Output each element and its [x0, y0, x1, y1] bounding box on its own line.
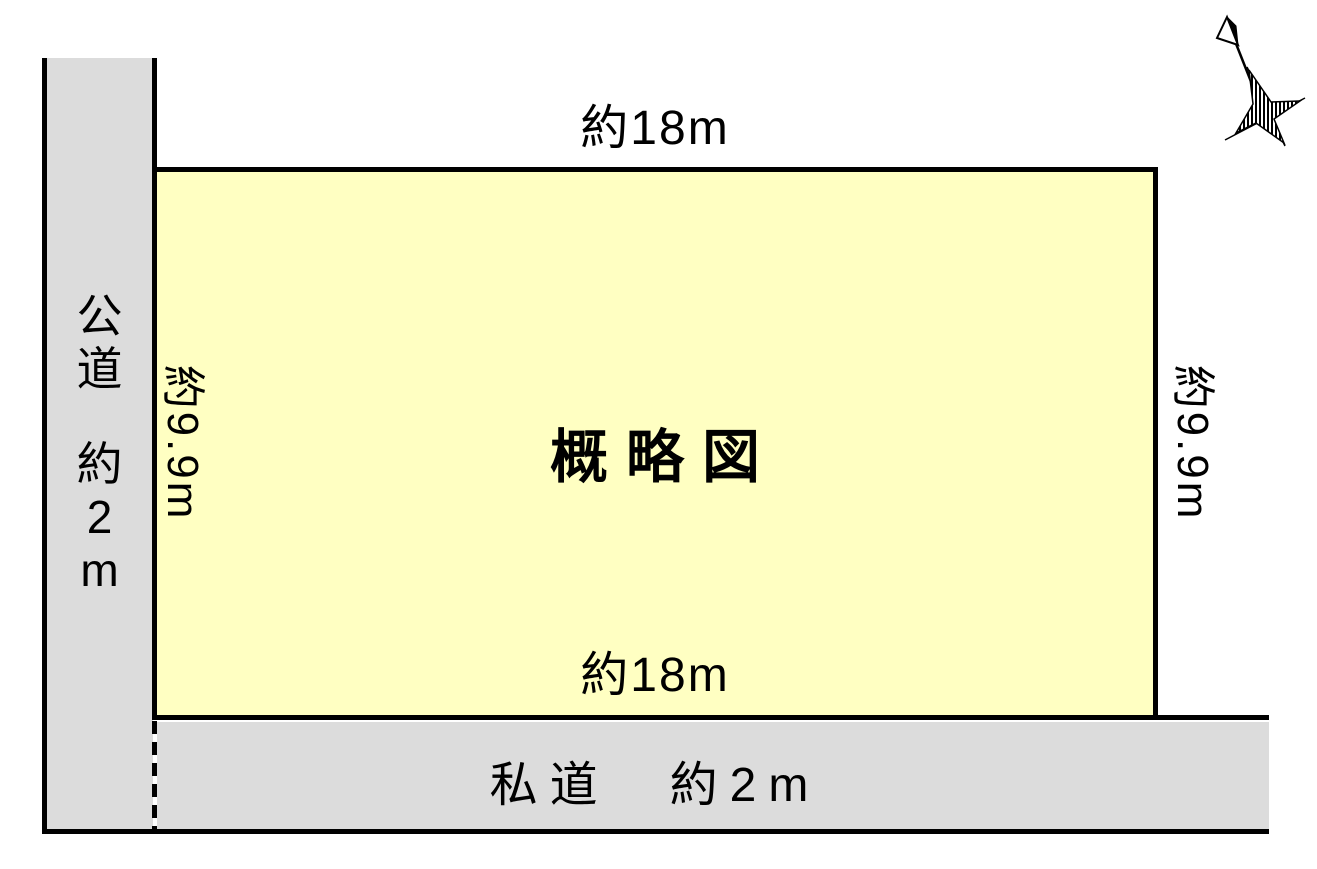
private-road-label: 私道 約2m — [152, 745, 1158, 815]
public-road-label-char: 道 — [77, 343, 123, 396]
bottom-boundary-line — [42, 829, 1269, 834]
public-road-label-char: 公 — [77, 290, 123, 343]
bottom-dimension-label: 約18m — [152, 650, 1158, 703]
private-road-top-border-extension — [1158, 715, 1269, 720]
right-dimension-label: 約9.9m — [1166, 333, 1218, 553]
plot-title: 概略図 — [152, 410, 1158, 494]
north-compass-icon — [1195, 5, 1317, 150]
public-road-label-char: m — [80, 544, 118, 597]
top-dimension-label: 約18m — [152, 103, 1158, 156]
public-road-label: 公 道 約 2 m — [42, 290, 157, 597]
public-road-label-char: 2 — [87, 491, 113, 544]
plot-diagram: 約18m 約18m 約9.9m 約9.9m 概略図 公 道 約 2 m 私道 約… — [0, 0, 1317, 869]
public-road-label-char: 約 — [77, 438, 123, 491]
